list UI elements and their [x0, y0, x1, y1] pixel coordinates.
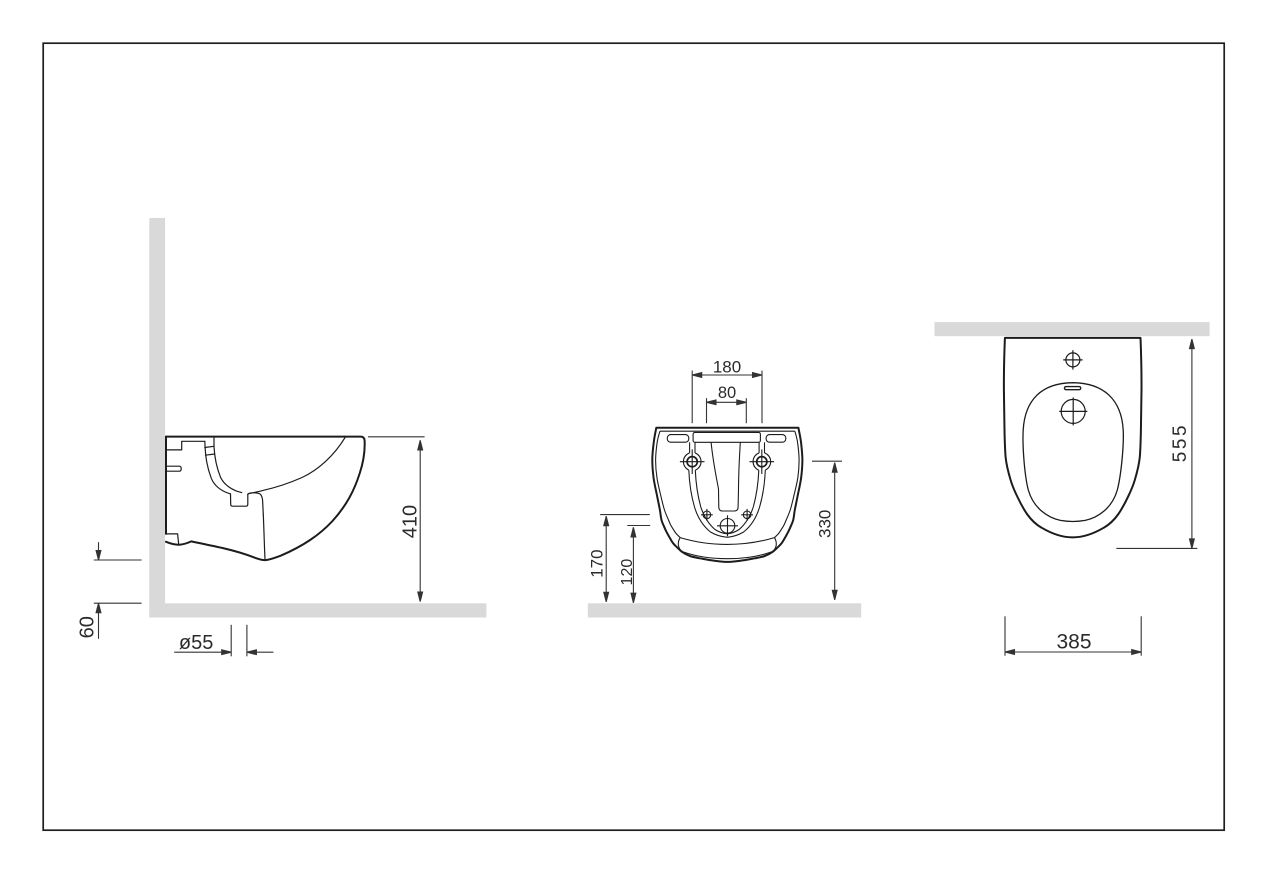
svg-text:410: 410 [399, 505, 421, 538]
svg-text:555: 555 [1170, 423, 1191, 462]
svg-text:180: 180 [713, 357, 741, 376]
svg-text:60: 60 [77, 616, 99, 638]
svg-text:170: 170 [588, 549, 607, 577]
svg-text:385: 385 [1056, 630, 1091, 653]
svg-text:ø55: ø55 [179, 632, 213, 654]
svg-text:80: 80 [718, 384, 736, 402]
svg-text:120: 120 [619, 559, 636, 586]
svg-text:330: 330 [816, 510, 835, 538]
